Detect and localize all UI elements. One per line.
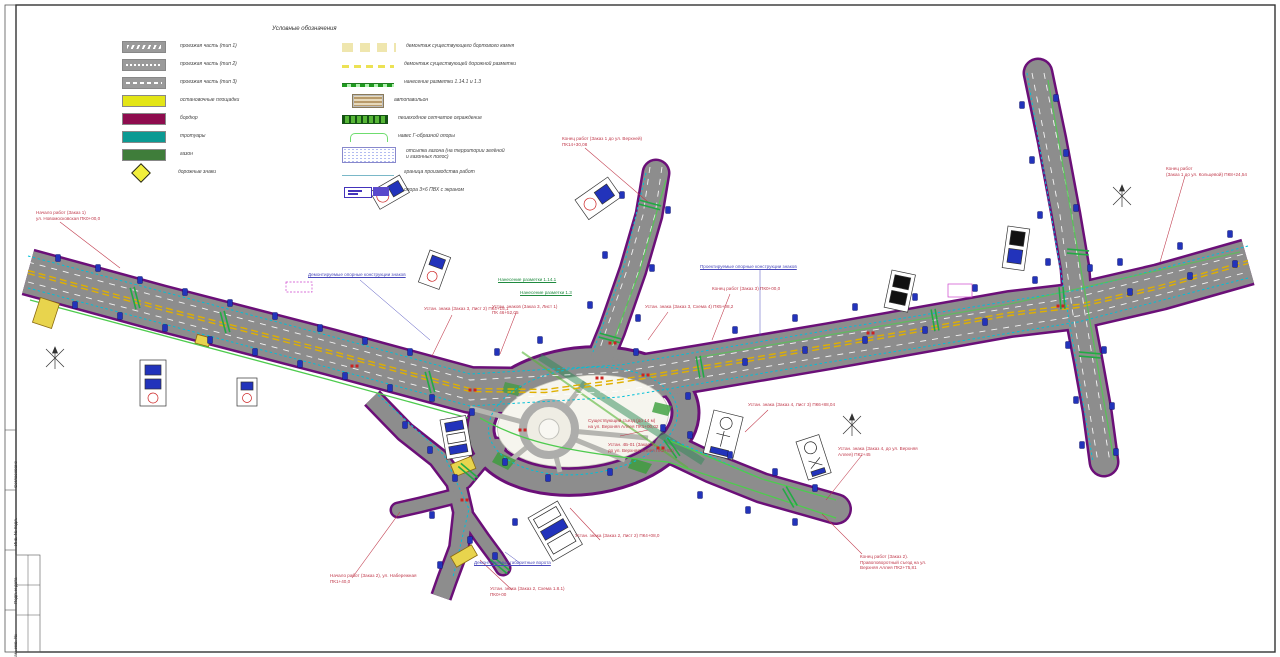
road-sign-icon (863, 337, 868, 344)
legend-item: газон (122, 148, 322, 161)
road-sign-icon (428, 447, 433, 454)
road-sign-icon (363, 338, 368, 345)
legend-item-label: тротуары (180, 134, 205, 140)
road-sign-icon (913, 294, 918, 301)
road-sign-icon (973, 285, 978, 292)
annotation-callout: Устан. знака (Заказ 4, до ул. Верхняя Ал… (838, 446, 918, 457)
road-sign-icon (96, 265, 101, 272)
annotation-callout: Демонтируемые габаритные ворота (474, 560, 551, 566)
road-sign-icon (1102, 347, 1107, 354)
road-sign-icon (773, 469, 778, 476)
road-sign-icon (1178, 243, 1183, 250)
road-sign-icon (1080, 442, 1085, 449)
road-sign-icon (1074, 397, 1079, 404)
road-sign-icon (1088, 265, 1093, 272)
legend-item: отсыпка газона (на территории зелёной и … (342, 148, 672, 161)
legend-item-label: опора 3×6 ПВХ с экраном (404, 188, 464, 194)
road-sign-icon (603, 252, 608, 259)
road-sign-icon (253, 349, 258, 356)
road-sign-icon (138, 277, 143, 284)
road-sign-icon (661, 425, 666, 432)
road-sign-icon (408, 349, 413, 356)
annotation-callout: Устан. знака (Заказ 2, Схема 1.8.1) ПК0+… (490, 586, 565, 597)
legend-item-label: проезжая часть (тип 1) (180, 44, 237, 50)
title-block-label: Подп. и дата (13, 577, 18, 604)
road-sign-icon (228, 300, 233, 307)
legend-item: пешеходное сетчатое ограждение (342, 112, 672, 125)
road-sign-icon (793, 519, 798, 526)
annotation-callout: Проектируемые опорные конструкции знаков (700, 264, 797, 270)
road-sign-icon (1128, 289, 1133, 296)
road-sign-icon (1114, 449, 1119, 456)
legend-item: опора 3×6 ПВХ с экраном (342, 184, 672, 197)
road-sign-icon (666, 207, 671, 214)
road-sign-icon (513, 519, 518, 526)
road-sign-icon (813, 485, 818, 492)
legend-item-label: проезжая часть (тип 3) (180, 80, 237, 86)
legend-item-label: дорожные знаки (178, 170, 216, 176)
legend-item: проезжая часть (тип 3) (122, 76, 322, 89)
road-sign-icon (388, 385, 393, 392)
road-sign-icon (1038, 212, 1043, 219)
road-sign-icon (1020, 102, 1025, 109)
legend-item: бордюр (122, 112, 322, 125)
road-sign-icon (983, 319, 988, 326)
legend-item-label: демонтаж существующего бортового камня (406, 44, 514, 50)
title-block-label: Взам. инв. № (13, 634, 18, 657)
drawing-sheet: Условные обозначения проезжая часть (тип… (0, 0, 1280, 657)
road-sign-icon (803, 347, 808, 354)
road-sign-icon (1074, 205, 1079, 212)
annotation-callout: Устан. 4Б-01 (Заказ 1, до ул. Верхняя Ал… (608, 442, 674, 453)
road-sign-icon (538, 337, 543, 344)
road-sign-icon (728, 452, 733, 459)
road-sign-icon (163, 325, 168, 332)
road-sign-icon (73, 302, 78, 309)
legend-right-column: демонтаж существующего бортового камняде… (342, 40, 672, 202)
legend-item: автопавильон (342, 94, 672, 107)
road-sign-icon (56, 255, 61, 262)
legend-item: нанесение разметки 1.14.1 и 1.3 (342, 76, 672, 89)
legend-item-label: газон (180, 152, 193, 158)
road-sign-icon (1110, 403, 1115, 410)
road-sign-icon (1228, 231, 1233, 238)
road-sign-icon (588, 302, 593, 309)
road-sign-icon (650, 265, 655, 272)
road-sign-icon (468, 537, 473, 544)
legend-item-label: автопавильон (394, 98, 428, 104)
road-sign-icon (318, 325, 323, 332)
legend-left-column: проезжая часть (тип 1)проезжая часть (ти… (122, 40, 322, 184)
title-block-label: Согласовано (13, 461, 18, 488)
annotation-callout: Конец работ (Заказ 1 до ул. Кольцевой) П… (1166, 166, 1247, 177)
road-sign-icon (438, 562, 443, 569)
road-sign-icon (1188, 273, 1193, 280)
annotation-callout: Существующий съезд (до 14 м) на ул. Верх… (588, 418, 658, 429)
annotation-callout: Конец работ (Заказ 2). Правоповоротный с… (860, 554, 926, 571)
legend-item: демонтаж существующего бортового камня (342, 40, 672, 53)
annotation-callout: Нанесение разметки 1.3 (520, 290, 572, 296)
road-sign-icon (1064, 150, 1069, 157)
road-sign-icon (503, 459, 508, 466)
legend-item-label: остановочные площадки (180, 98, 239, 104)
legend-item-label: бордюр (180, 116, 198, 122)
road-sign-icon (746, 507, 751, 514)
legend-item: дорожные знаки (122, 166, 322, 179)
road-sign-icon (1033, 277, 1038, 284)
road-sign-icon (1046, 259, 1051, 266)
road-sign-icon (430, 512, 435, 519)
road-sign-icon (298, 361, 303, 368)
annotation-callout: Начало работ (Заказ 2), ул. Набережная П… (330, 573, 417, 584)
legend-item-label: навес Г-образной опоры (398, 134, 455, 140)
legend-item: граница производства работ (342, 166, 672, 179)
road-sign-icon (546, 475, 551, 482)
annotation-callout: Устан. знака (Заказ 2, Лист 2) ПК4+08,0 (575, 533, 659, 539)
road-sign-icon (743, 359, 748, 366)
road-sign-icon (1233, 261, 1238, 268)
road-sign-icon (923, 327, 928, 334)
legend-item: демонтаж существующей дорожной разметки (342, 58, 672, 71)
legend-item-label: нанесение разметки 1.14.1 и 1.3 (404, 80, 481, 86)
annotation-callout: Конец работ (Заказ 1 до ул. Верхней) ПК1… (562, 136, 642, 147)
legend-item-label: демонтаж существующей дорожной разметки (404, 62, 516, 68)
road-sign-icon (636, 315, 641, 322)
road-sign-icon (273, 313, 278, 320)
legend-item-label: граница производства работ (404, 170, 475, 176)
annotation-callout: Устан. знака (Заказ 3, Схема 4) ПК5+08,2 (645, 304, 733, 310)
annotation-callout: Демонтируемые опорные конструкции знаков (308, 272, 406, 278)
road-sign-icon (403, 422, 408, 429)
title-block-label: Инв. № подл. (13, 518, 18, 546)
road-sign-icon (688, 432, 693, 439)
road-sign-icon (1030, 157, 1035, 164)
road-sign-icon (493, 553, 498, 560)
road-sign-icon (208, 337, 213, 344)
road-sign-icon (183, 289, 188, 296)
road-sign-icon (686, 393, 691, 400)
annotation-callout: Нанесение разметки 1.14.1 (498, 277, 556, 283)
road-sign-icon (1118, 259, 1123, 266)
annotation-callout: Начало работ (Заказ 1) ул. Новомосковска… (36, 210, 100, 221)
road-sign-icon (1066, 342, 1071, 349)
road-sign-icon (1054, 95, 1059, 102)
road-sign-icon (733, 327, 738, 334)
road-sign-icon (634, 349, 639, 356)
legend-item-label: отсыпка газона (на территории зелёной и … (406, 149, 505, 161)
legend-item: остановочные площадки (122, 94, 322, 107)
annotation-callout: Устан. знака (Заказ 4, Лист 3) ПК6+88,04 (748, 402, 835, 408)
legend-title: Условные обозначения (272, 26, 337, 32)
road-sign-icon (698, 492, 703, 499)
road-sign-icon (853, 304, 858, 311)
road-sign-icon (793, 315, 798, 322)
road-sign-icon (495, 349, 500, 356)
legend-item-label: пешеходное сетчатое ограждение (398, 116, 482, 122)
road-sign-icon (453, 475, 458, 482)
road-sign-icon (343, 373, 348, 380)
legend-item: тротуары (122, 130, 322, 143)
road-sign-icon (470, 409, 475, 416)
road-sign-icon (608, 469, 613, 476)
road-sign-icon (118, 313, 123, 320)
legend-item-label: проезжая часть (тип 2) (180, 62, 237, 68)
annotation-callout: Конец работ (Заказ 3) ПК0+00,0 (712, 286, 780, 292)
road-sign-icon (430, 395, 435, 402)
legend-item: проезжая часть (тип 2) (122, 58, 322, 71)
annotation-callout: Устан. знаков (Заказ 3, Лист 1) ПК 46+52… (492, 304, 557, 315)
legend-item: проезжая часть (тип 1) (122, 40, 322, 53)
